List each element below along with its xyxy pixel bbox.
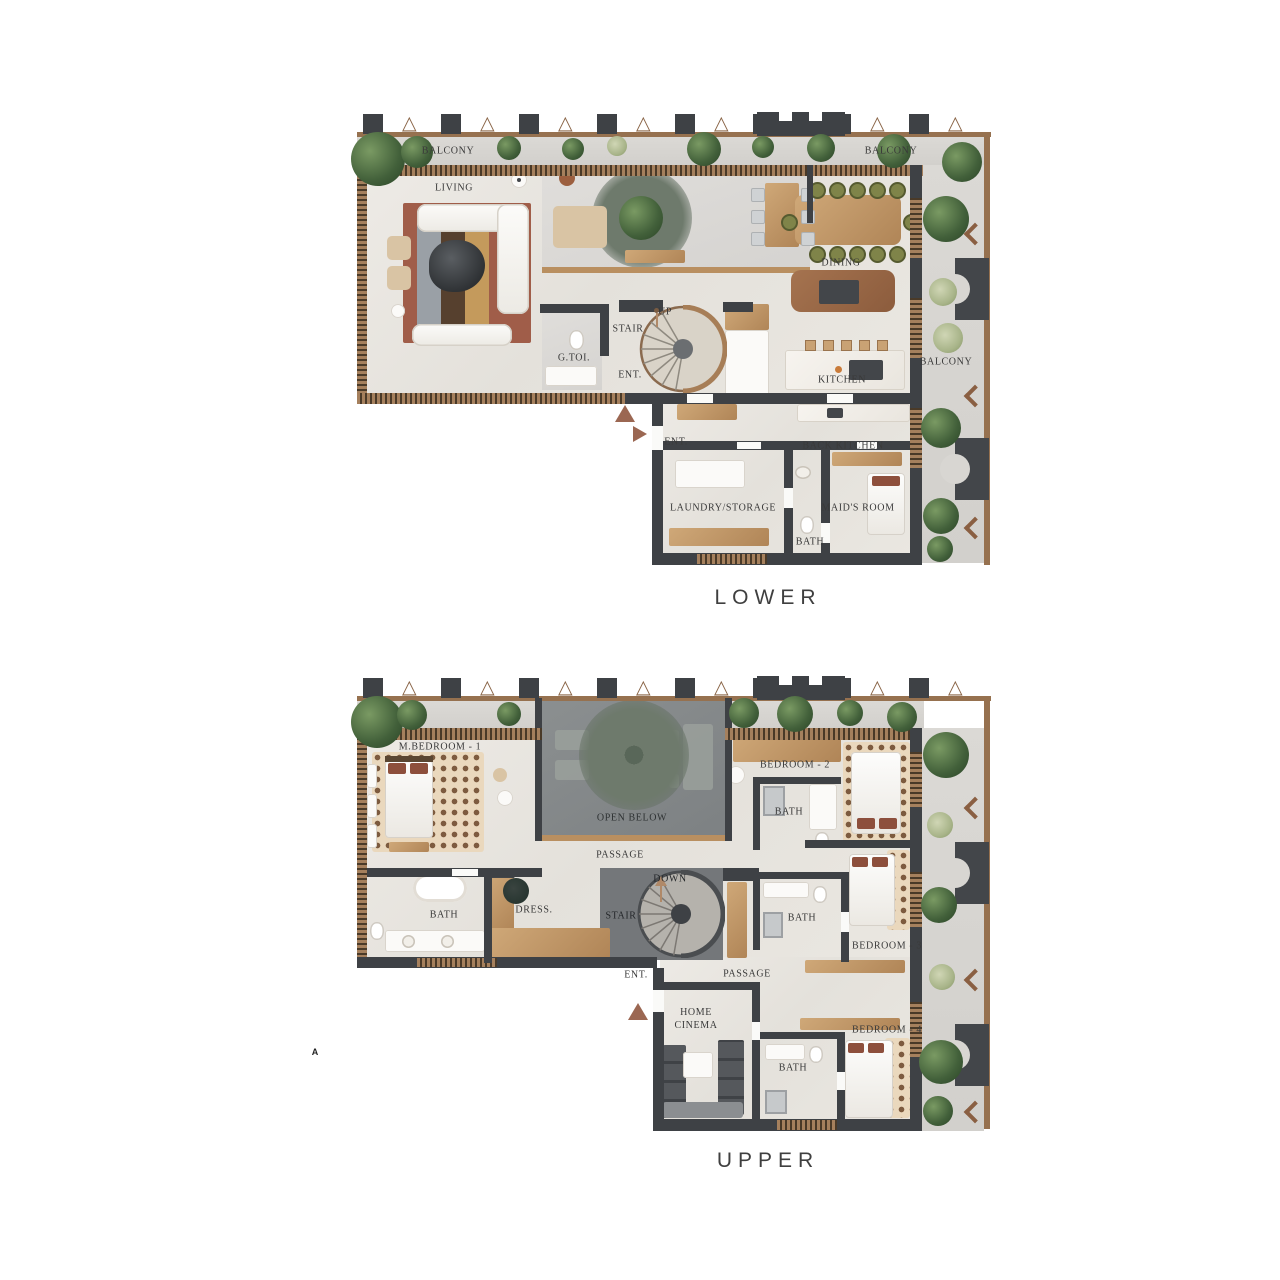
outdoor-chair [751, 232, 765, 246]
west-window-wall [357, 728, 367, 968]
pergola-triangle-icon: △ [402, 114, 417, 133]
bed2-bed3-wall [805, 840, 910, 848]
pouf [493, 768, 507, 782]
entry-arrow-up-icon [615, 405, 635, 422]
gtoi-toilet [569, 330, 584, 350]
plant-icon [351, 696, 403, 748]
pillow [872, 857, 888, 867]
kitchen-stool [805, 340, 816, 351]
west-window-wall [357, 165, 367, 404]
label-ent-entry: ENT. [664, 437, 688, 448]
label-bath-bedroom2: BATH [775, 807, 804, 818]
plant-icon [687, 132, 721, 166]
maids-pillow [872, 476, 900, 486]
entry-arrow-right-icon [633, 426, 647, 442]
vanity [765, 1044, 805, 1060]
plant-icon [933, 323, 963, 353]
plant-icon [929, 964, 955, 990]
plant-icon [837, 700, 863, 726]
pergola-triangle-icon: △ [948, 678, 963, 697]
sink [441, 935, 454, 948]
pergola-triangle-icon: △ [558, 678, 573, 697]
pergola-post [675, 678, 695, 698]
door-gap [752, 1022, 760, 1040]
facade-arch-block [955, 438, 989, 500]
label-ent: ENT. [624, 970, 648, 981]
wing-south-window [697, 554, 767, 564]
dining-chair [889, 182, 906, 199]
caption-lower: LOWER [714, 586, 821, 610]
terrace-palm-core [619, 196, 663, 240]
caption-upper: UPPER [717, 1149, 819, 1173]
label-ent-stair: ENT. [618, 370, 642, 381]
east-window [910, 198, 922, 258]
wing-south-window [777, 1120, 837, 1130]
sofa-chaise [497, 204, 529, 314]
closet-panel [367, 764, 377, 788]
section-marker-a: A [312, 1047, 319, 1057]
vanity [763, 882, 809, 898]
back-kitchen-counter [797, 404, 910, 422]
label-balcony-nw: BALCONY [422, 146, 475, 157]
plant-icon [607, 136, 627, 156]
cinema-top-wall [660, 982, 752, 990]
terrace-bench [625, 250, 685, 263]
label-balcony-ne: BALCONY [865, 146, 918, 157]
pillow [879, 818, 897, 829]
closet-panel [367, 824, 377, 848]
label-stair: STAIR [605, 911, 636, 922]
bath2-top-wall [753, 777, 841, 784]
vanity [809, 784, 837, 830]
double-vanity [385, 930, 485, 952]
ottoman [387, 266, 411, 290]
pergola-post [441, 678, 461, 698]
pergola-post [519, 114, 539, 134]
outdoor-chair [801, 232, 815, 246]
label-dining: DINING [821, 258, 860, 269]
wardrobe-l-horizontal [490, 928, 610, 958]
toilet [370, 922, 384, 940]
entry-arrow-up-icon [628, 1003, 648, 1020]
pergola-triangle-icon: △ [714, 678, 729, 697]
ottoman [387, 236, 411, 260]
plant-icon [929, 278, 957, 306]
decor-dot [517, 178, 521, 182]
pillow [410, 763, 428, 774]
pillow [852, 857, 868, 867]
pergola-triangle-icon: △ [870, 678, 885, 697]
fruit-bowl [835, 366, 842, 373]
east-window [910, 872, 922, 927]
pergola-post [363, 114, 383, 134]
south-wall-master [357, 957, 657, 968]
door-gap [452, 869, 478, 876]
pillow [868, 1043, 884, 1053]
bath-sink [795, 466, 811, 479]
label-open-below: OPEN BELOW [597, 813, 667, 824]
passage-console [805, 960, 905, 973]
plant-icon [921, 887, 957, 923]
plant-icon [887, 702, 917, 732]
label-bedroom-2: BEDROOM - 2 [760, 760, 830, 771]
plant-icon [777, 696, 813, 732]
mid-south-wall [625, 393, 910, 404]
plant-icon [729, 698, 759, 728]
kitchen-stool [823, 340, 834, 351]
parapet-block [757, 112, 845, 136]
plant-icon [497, 136, 521, 160]
label-balcony-e: BALCONY [920, 357, 973, 368]
pergola-post [441, 114, 461, 134]
plant-icon [923, 1096, 953, 1126]
plant-icon [807, 134, 835, 162]
label-dress: DRESS. [515, 905, 552, 916]
island-tray [819, 280, 859, 304]
door-gap [737, 442, 761, 449]
label-maids-room: MAID'S ROOM [821, 503, 894, 514]
void-palm [579, 700, 689, 810]
closet-panel [367, 794, 377, 818]
floor-plan-sheet: BALCONY LIVING BALCONY DINING UP STAIR G… [0, 0, 1280, 1280]
shower [763, 912, 783, 938]
label-home-cinema: HOME CINEMA [663, 1006, 729, 1032]
sink [402, 935, 415, 948]
label-living: LIVING [435, 183, 473, 194]
kitchen-stool [877, 340, 888, 351]
dining-chair [889, 246, 906, 263]
pergola-triangle-icon: △ [870, 114, 885, 133]
plant-icon [397, 700, 427, 730]
label-bedroom-3: BEDROOM - 3 [852, 941, 922, 952]
pillow [857, 818, 875, 829]
pergola-triangle-icon: △ [714, 114, 729, 133]
pergola-triangle-icon: △ [480, 678, 495, 697]
door-gap [784, 488, 793, 508]
dining-chair [829, 182, 846, 199]
south-wall-living [357, 393, 625, 404]
label-up: UP [658, 307, 672, 318]
kitchen-stool [859, 340, 870, 351]
cinema-console [683, 1052, 713, 1078]
bed-bench [389, 842, 429, 852]
outdoor-chair [751, 188, 765, 202]
pergola-triangle-icon: △ [636, 678, 651, 697]
laundry-machines [675, 460, 745, 488]
label-m-bedroom-1: M.BEDROOM - 1 [399, 742, 482, 753]
down-arrow-line [660, 886, 662, 902]
kitchen-stool [841, 340, 852, 351]
plant-icon [562, 138, 584, 160]
bath3-top-wall [753, 872, 841, 879]
toilet [800, 516, 814, 534]
label-stair: STAIR [612, 324, 643, 335]
label-bath-bedroom3: BATH [788, 913, 817, 924]
plant-icon [921, 408, 961, 448]
shower [765, 1090, 787, 1114]
pergola-triangle-icon: △ [948, 114, 963, 133]
toilet [813, 886, 827, 903]
pergola-triangle-icon: △ [636, 114, 651, 133]
bath-dress-wall [484, 875, 492, 963]
side-table [497, 790, 513, 806]
pergola-triangle-icon: △ [558, 114, 573, 133]
pillow [388, 763, 406, 774]
terrace-east-wall [807, 165, 813, 223]
pergola-post [597, 114, 617, 134]
dining-chair [869, 182, 886, 199]
pergola-beam-east [984, 137, 990, 565]
cinema-side-wall [752, 982, 760, 1127]
bathtub [413, 874, 467, 902]
pergola-triangle-icon: △ [402, 678, 417, 697]
label-bedroom-4: BEDROOM - 4 [852, 1025, 922, 1036]
pillow [848, 1043, 864, 1053]
label-passage-lower: PASSAGE [723, 969, 771, 980]
back-kitchen-cabinet [677, 404, 737, 420]
door-gap [827, 394, 853, 403]
door-gap [841, 912, 849, 932]
lower-floor-plan: BALCONY LIVING BALCONY DINING UP STAIR G… [357, 108, 991, 576]
bath2-side-wall [753, 777, 760, 850]
north-window-wall [725, 728, 917, 740]
laundry-cabinet [669, 528, 769, 546]
label-bath-bedroom4: BATH [779, 1063, 808, 1074]
maids-cabinet [832, 452, 902, 466]
door-gap [837, 1072, 845, 1090]
pergola-post [909, 114, 929, 134]
east-window [910, 752, 922, 807]
entry-door-gap [652, 426, 663, 450]
bath3-side-wall [753, 872, 760, 950]
east-window [910, 408, 922, 468]
upper-floor-plan: M.BEDROOM - 1 BEDROOM - 2 OPEN BELOW BAT… [357, 672, 991, 1140]
pergola-post [909, 678, 929, 698]
rattan-lounge [553, 206, 607, 248]
dining-chair [781, 214, 798, 231]
plant-icon [752, 136, 774, 158]
void-west-wall [535, 698, 542, 841]
pergola-post [675, 114, 695, 134]
dining-chair [849, 182, 866, 199]
label-bath-master: BATH [430, 910, 459, 921]
outdoor-chair [751, 210, 765, 224]
plant-icon [923, 732, 969, 778]
east-window [910, 298, 922, 358]
plant-icon [927, 536, 953, 562]
label-laundry-storage: LAUNDRY/STORAGE [670, 503, 776, 514]
pergola-triangle-icon: △ [480, 114, 495, 133]
cinema-couch [663, 1102, 743, 1118]
facade-arch-block [955, 842, 989, 904]
wing-south-wall [652, 553, 910, 565]
spiral-staircase [639, 305, 727, 393]
sink-unit [827, 408, 843, 418]
pergola-post [519, 678, 539, 698]
plant-icon [927, 812, 953, 838]
dining-chair [869, 246, 886, 263]
label-guest-toilet: G.TOI. [558, 353, 590, 364]
gtoi-top-wall [540, 304, 606, 313]
stone-planter [503, 878, 529, 904]
label-back-kitchen: BACK KITCHEN [802, 441, 883, 452]
label-kitchen: KITCHEN [818, 375, 866, 386]
void-trim [542, 835, 725, 841]
gtoi-side-wall [600, 304, 609, 356]
toilet [809, 1046, 823, 1063]
plant-icon [923, 498, 959, 534]
plant-icon [942, 142, 982, 182]
label-passage-upper: PASSAGE [596, 850, 644, 861]
pergola-post [363, 678, 383, 698]
plant-icon [351, 132, 405, 186]
facade-arch-block [955, 258, 989, 320]
side-table [391, 304, 405, 318]
gtoi-vanity [545, 366, 597, 386]
plant-icon [497, 702, 521, 726]
plant-icon [923, 196, 969, 242]
label-bath: BATH [796, 537, 825, 548]
lift-shaft [725, 330, 769, 400]
stair-wood-pillar [727, 882, 747, 958]
lift-wall-block [723, 302, 753, 312]
pergola-post [597, 678, 617, 698]
north-window-wall [357, 165, 923, 176]
master-headboard [385, 756, 433, 762]
plant-icon [919, 1040, 963, 1084]
door-gap [687, 394, 713, 403]
terrace-trim [542, 267, 810, 273]
label-down: DOWN [653, 874, 687, 885]
sofa-bench [412, 324, 512, 346]
bath4-top-wall [760, 1032, 845, 1039]
